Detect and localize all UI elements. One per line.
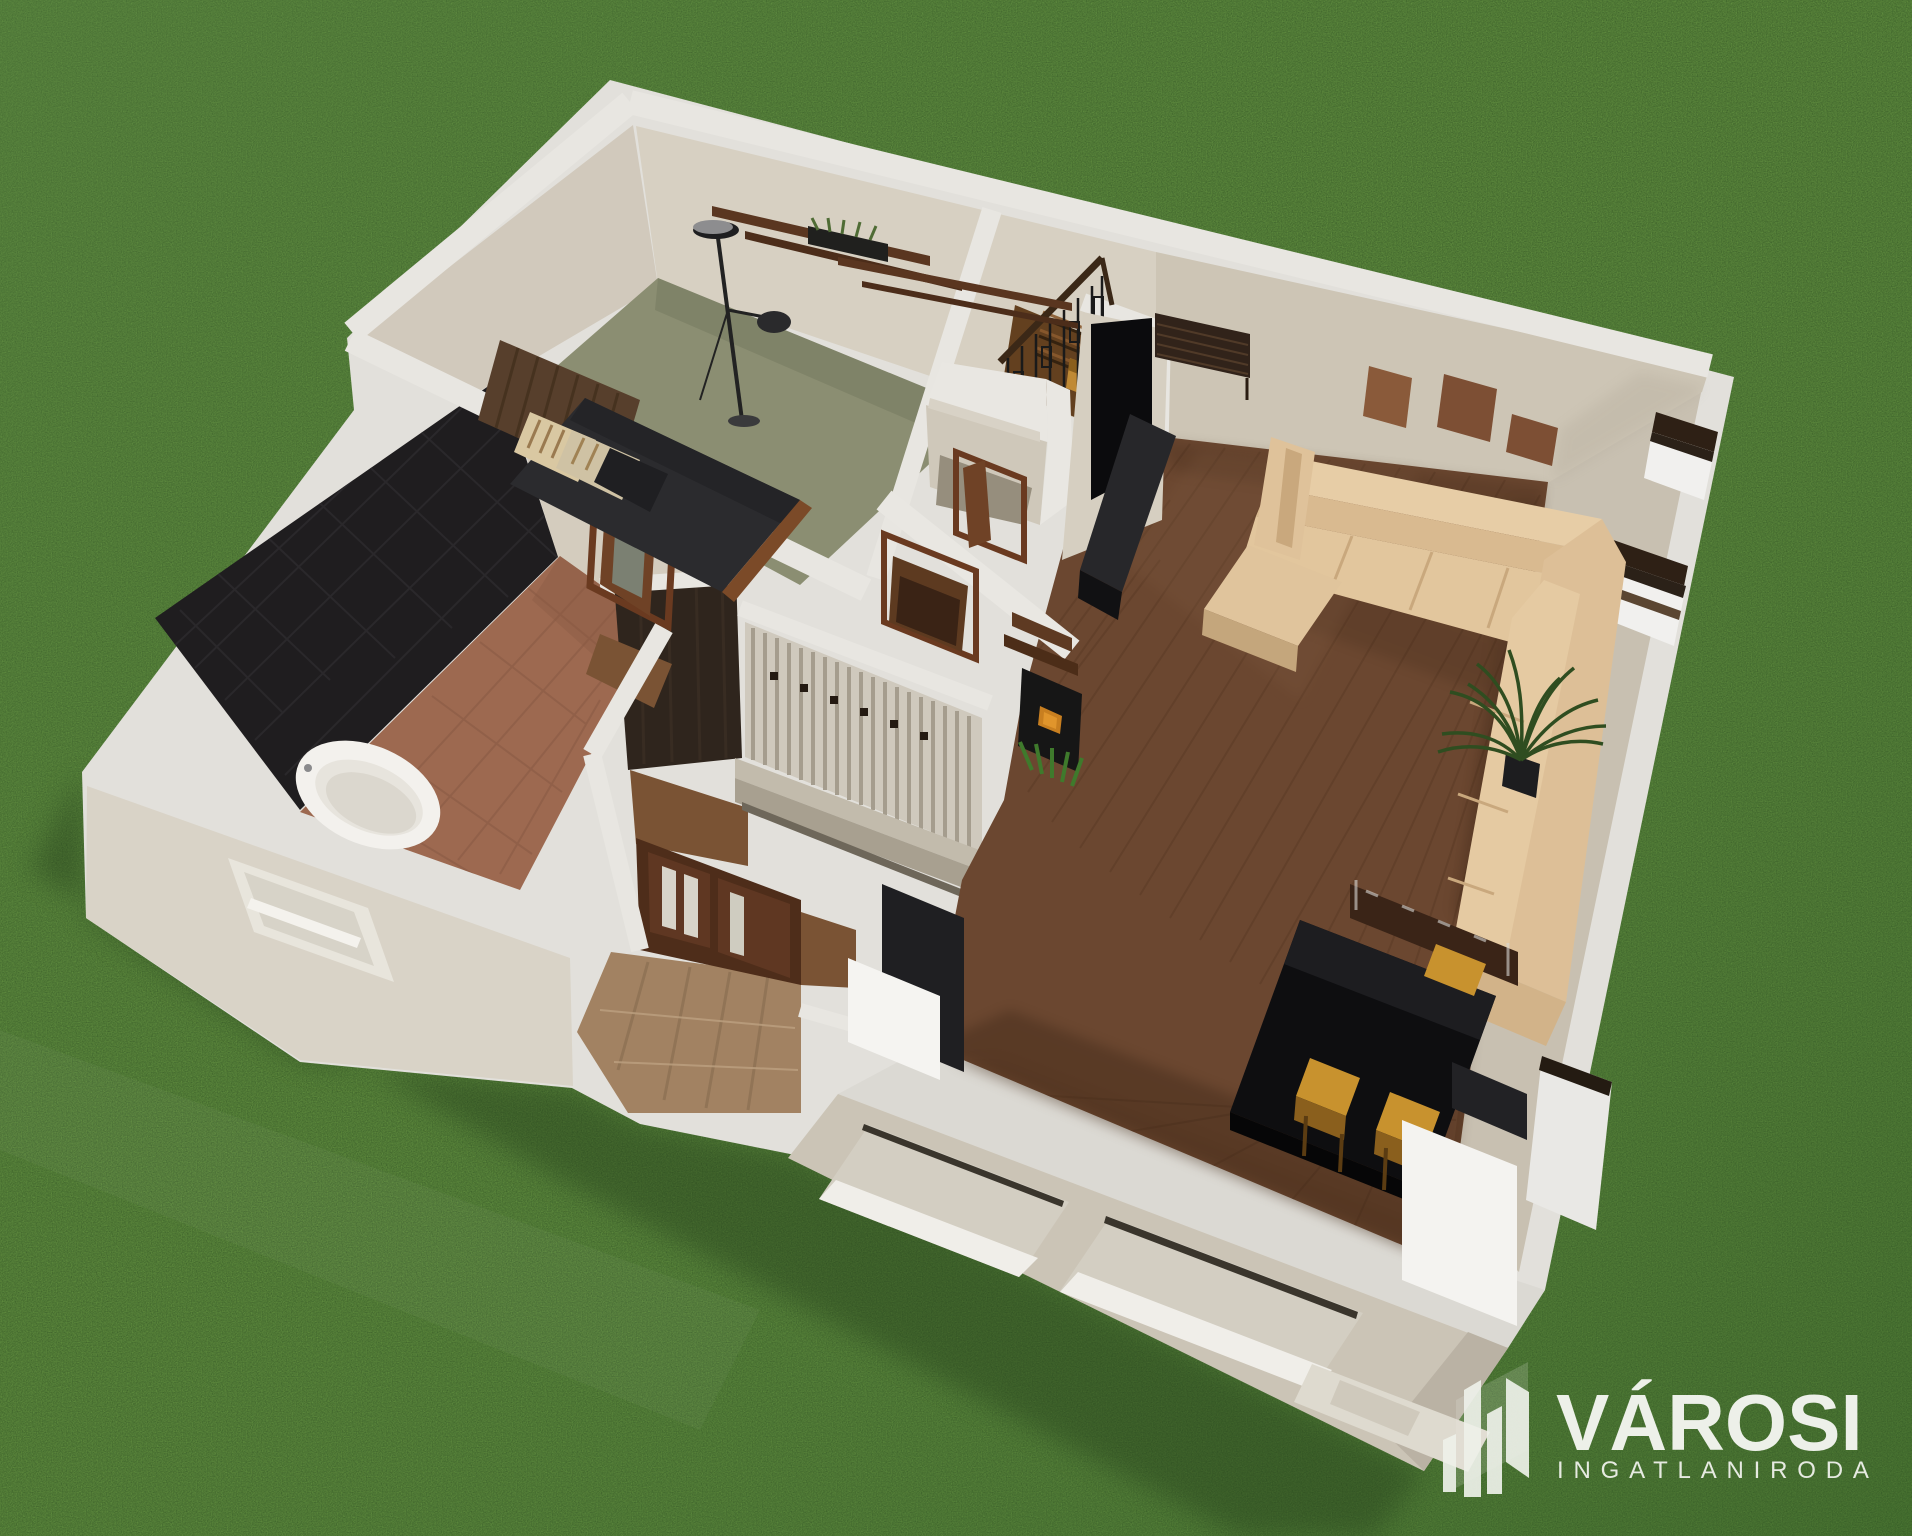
svg-text:VÁROSI: VÁROSI [1556,1378,1863,1467]
svg-text:INGATLANIRODA: INGATLANIRODA [1557,1457,1879,1484]
